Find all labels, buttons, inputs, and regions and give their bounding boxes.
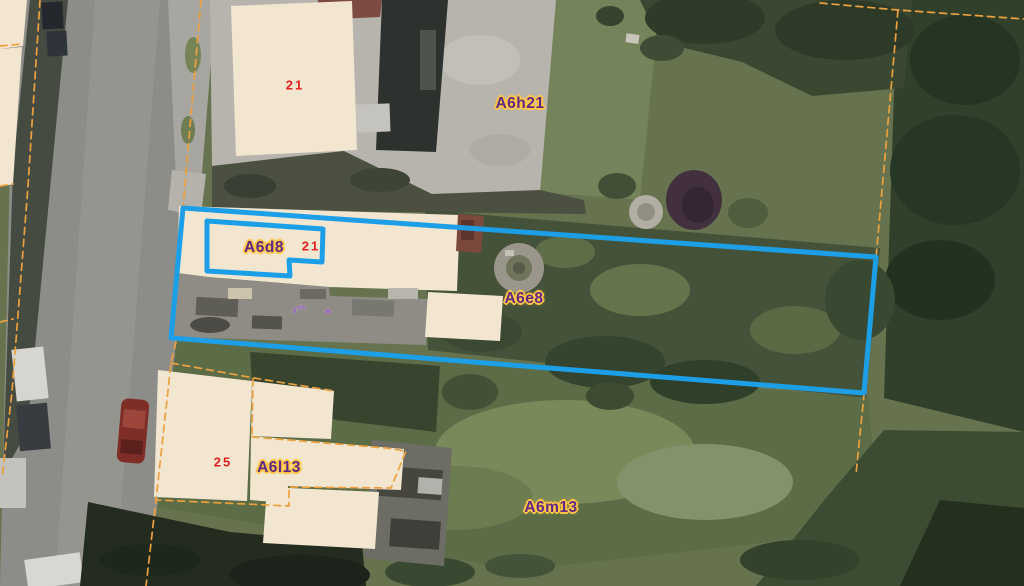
utility-marker-glyph: x bbox=[292, 305, 297, 315]
round-patio bbox=[494, 243, 544, 293]
dark-roof-building bbox=[376, 0, 448, 152]
building-25-upper bbox=[251, 381, 334, 439]
garden-area bbox=[425, 210, 880, 398]
building-25-main bbox=[154, 370, 252, 501]
aerial-basemap bbox=[0, 0, 1024, 586]
map-viewport[interactable]: 21 21 25 xqm ж A6h21 A6d8 A6e8 A6l13 A6m… bbox=[0, 0, 1024, 586]
buildings-layer bbox=[154, 206, 503, 566]
parcel-label-a6m13: A6m13 bbox=[524, 499, 577, 517]
parked-car bbox=[46, 30, 67, 56]
building-a6e8 bbox=[425, 292, 503, 341]
house-number-21: 21 bbox=[286, 78, 304, 93]
red-roof bbox=[316, 0, 382, 20]
cadastral-boundary-lines bbox=[0, 0, 1024, 586]
parcel-label-layer: A6h21 A6d8 A6e8 A6l13 A6m13 bbox=[0, 0, 1024, 586]
road-shadow-band bbox=[3, 0, 68, 474]
red-car bbox=[116, 398, 149, 464]
house-number-25: 25 bbox=[214, 455, 232, 470]
parcel-label-a6h21: A6h21 bbox=[495, 95, 544, 113]
parcel-label-a6l13: A6l13 bbox=[257, 459, 301, 477]
house-number-layer: 21 21 25 xqm ж bbox=[0, 0, 1024, 586]
parked-car bbox=[16, 403, 51, 452]
left-edge-buildings bbox=[0, 0, 27, 508]
building-25-lower bbox=[263, 487, 379, 549]
house-number-21b: 21 bbox=[302, 239, 320, 254]
utility-marker-1: xqm bbox=[292, 305, 306, 315]
white-van bbox=[11, 346, 48, 401]
sidewalk bbox=[168, 0, 216, 210]
driveway-yard bbox=[172, 273, 428, 345]
lawn-area bbox=[150, 335, 880, 570]
parcel-label-a6e8: A6e8 bbox=[504, 290, 543, 308]
road bbox=[0, 0, 216, 586]
white-bus bbox=[24, 552, 84, 586]
courtyard-layer bbox=[210, 0, 586, 214]
building-a6d8-block bbox=[177, 206, 460, 291]
trees-bottom-left bbox=[80, 502, 366, 586]
parcel-label-a6d8: A6d8 bbox=[244, 239, 284, 257]
gray-roof-building bbox=[364, 440, 452, 566]
parcel-highlight-overlay bbox=[0, 0, 1024, 586]
utility-marker-glyph: ж bbox=[325, 306, 331, 316]
parked-car bbox=[41, 1, 63, 29]
lawn-detail-layer bbox=[80, 352, 1024, 586]
utility-marker-sup: qm bbox=[297, 305, 306, 311]
selected-parcel-outline[interactable] bbox=[171, 208, 876, 393]
gravel-courtyard bbox=[210, 0, 556, 196]
grass-base bbox=[0, 0, 1024, 586]
vehicles-layer bbox=[11, 1, 149, 586]
selected-building-outline[interactable] bbox=[207, 221, 323, 276]
utility-marker-2: ж bbox=[325, 306, 331, 316]
garden-detail-layer bbox=[442, 236, 895, 404]
road-layer bbox=[0, 0, 216, 586]
trees-layer bbox=[596, 0, 1024, 432]
building-21 bbox=[231, 1, 357, 156]
purple-tree bbox=[666, 170, 722, 230]
tree-strip-right bbox=[884, 0, 1024, 432]
hedge-row bbox=[212, 151, 586, 214]
building-25-extension bbox=[250, 436, 404, 503]
gray-bush bbox=[629, 195, 663, 229]
terrain-layer bbox=[0, 0, 1024, 586]
